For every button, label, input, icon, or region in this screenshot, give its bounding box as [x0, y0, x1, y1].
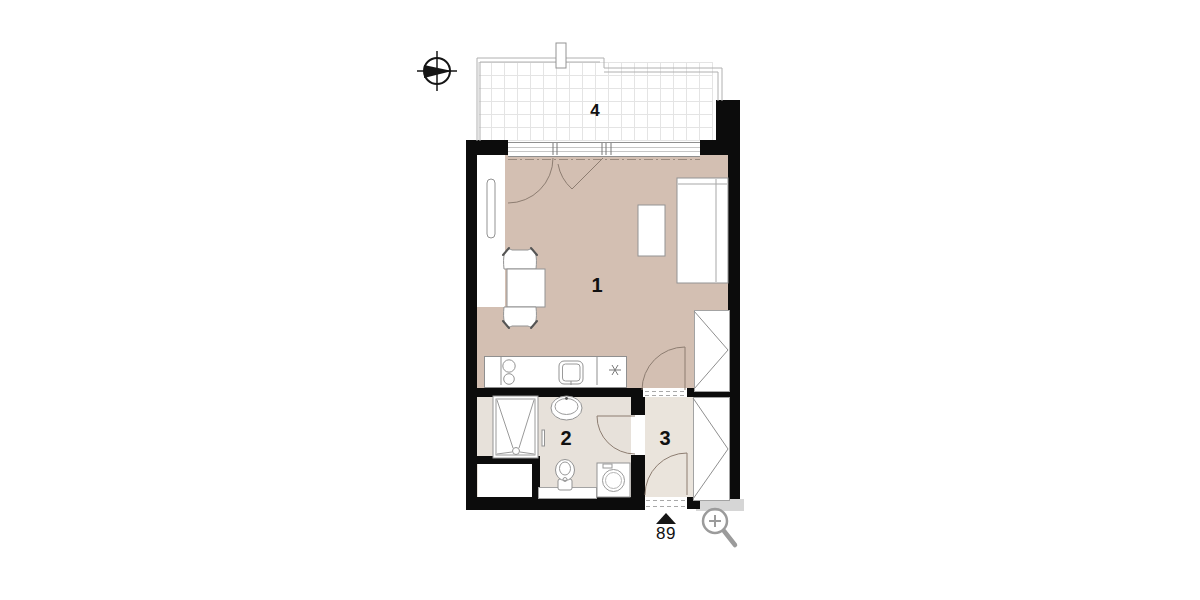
room-label-bathroom: 2 [560, 428, 571, 448]
zoom-button[interactable] [698, 503, 744, 551]
wall-top-left [466, 140, 508, 155]
wall-room2-room3-upper [631, 397, 645, 415]
room-1-floor [477, 155, 729, 388]
entrance-threshold [645, 497, 687, 510]
wall-room2-room3-lower [631, 455, 645, 497]
room-label-hall: 3 [659, 428, 670, 448]
wall-shaft-top [477, 456, 540, 464]
installation-shaft [478, 464, 532, 497]
kitchen-counter [484, 356, 627, 388]
room-label-living: 1 [591, 275, 602, 295]
wall-top-right-pier [716, 100, 740, 143]
room-1-left-niche [477, 155, 505, 307]
compass-icon [417, 51, 457, 91]
wardrobe-room1 [694, 310, 730, 392]
entrance-unit-number: 89 [656, 525, 676, 542]
balcony-window-band [508, 142, 700, 157]
room-label-balcony: 4 [590, 102, 599, 119]
door-threshold-room1-room3 [643, 388, 687, 397]
entrance-triangle-marker [656, 513, 676, 524]
bathroom-counter [538, 487, 597, 499]
wall-room1-room2 [477, 388, 643, 397]
lintel-dash-dot-line [508, 159, 700, 160]
wardrobe-room3 [693, 397, 730, 501]
floor-plan-canvas: 1 2 3 4 89 [0, 0, 1200, 600]
wall-left [466, 140, 477, 510]
magnifier-plus-icon [698, 503, 744, 551]
